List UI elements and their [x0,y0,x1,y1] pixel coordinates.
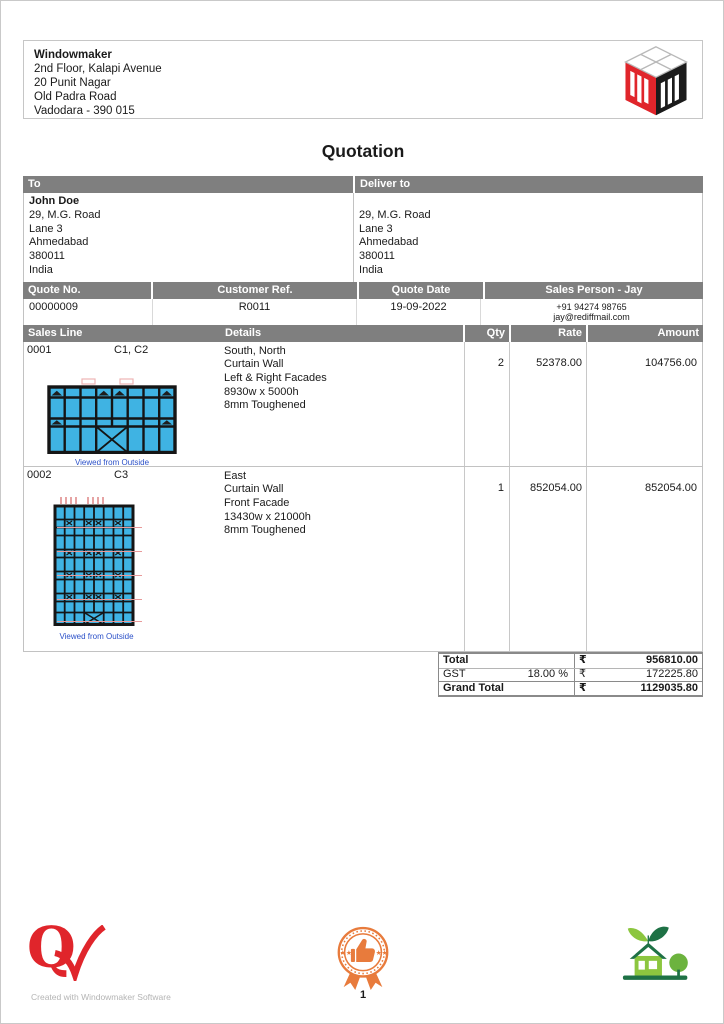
gst-row: GST 18.00 % ₹ 172225.80 [439,668,702,682]
svg-text:★★: ★★ [340,949,352,957]
detail-line: 13430w x 21000h [224,511,311,525]
sales-line-header: Sales Line Details [23,325,463,342]
line-qty: 2 [464,342,509,466]
rupee-symbol: ₹ [575,668,595,681]
items-header-row: Sales Line Details Qty Rate Amount [23,325,703,342]
curtain-wall-drawing-1: Viewed from Outside [47,378,177,467]
total-label: Total [439,654,568,667]
line-amount: 104756.00 [586,342,702,466]
detail-line: 8mm Toughened [224,399,327,413]
customer-name: John Doe [29,195,348,209]
line-amount: 852054.00 [586,467,702,651]
detail-line: Curtain Wall [224,483,311,497]
quotation-tables: To Deliver to John Doe 29, M.G. Road Lan… [23,176,703,697]
line-rate: 852054.00 [509,467,586,651]
curtain-wall-drawing-2: Viewed from Outside [49,495,144,641]
sales-line-row-2: 0002 C3 [23,467,703,652]
deliver-address-line: India [359,264,697,278]
deliver-address-line: Ahmedabad [359,236,697,250]
deliver-address-line: 380011 [359,250,697,264]
line-rate: 52378.00 [509,342,586,466]
grand-total-amount: 1129035.80 [595,682,702,695]
eco-house-icon [619,923,701,990]
line-details: East Curtain Wall Front Facade 13430w x … [224,469,311,651]
customer-ref-header: Customer Ref. [153,282,357,299]
quotation-page: Windowmaker 2nd Floor, Kalapi Avenue 20 … [0,0,724,1024]
line-details: South, North Curtain Wall Left & Right F… [224,344,327,466]
line-number: 0001 [24,344,114,358]
details-label: Details [225,325,261,342]
company-address-line: Vadodara - 390 015 [34,104,692,118]
to-address: John Doe 29, M.G. Road Lane 3 Ahmedabad … [24,193,353,282]
total-row: Total ₹ 956810.00 [439,654,702,668]
address-body: John Doe 29, M.G. Road Lane 3 Ahmedabad … [23,193,703,282]
company-address-line: 2nd Floor, Kalapi Avenue [34,62,692,76]
totals-table: Total ₹ 956810.00 GST 18.00 % ₹ 172225.8… [438,652,703,697]
sales-line-row-1: 0001 C1, C2 [23,342,703,467]
detail-line: 8mm Toughened [224,524,311,538]
qty-header: Qty [465,325,509,342]
to-address-line: Lane 3 [29,223,348,237]
detail-line: South, North [224,345,327,359]
detail-line: Front Facade [224,497,311,511]
grand-total-row: Grand Total ₹ 1129035.80 [439,681,702,695]
meta-values-row: 00000009 R0011 19-09-2022 +91 94274 9876… [23,299,703,325]
svg-text:★★: ★★ [376,949,388,957]
rate-header: Rate [511,325,586,342]
quote-date-header: Quote Date [359,282,483,299]
quality-check-icon: Q [27,923,111,991]
company-name: Windowmaker [34,48,692,62]
quote-date-value: 19-09-2022 [356,299,480,325]
to-address-line: 29, M.G. Road [29,209,348,223]
to-address-line: 380011 [29,250,348,264]
sales-person-phone: +91 94274 98765 [481,302,702,313]
gst-label: GST [439,668,528,681]
line-number: 0002 [24,469,114,483]
gst-pct: 18.00 % [528,668,574,681]
deliver-address-line: 29, M.G. Road [359,209,697,223]
line-qty: 1 [464,467,509,651]
detail-line: 8930w x 5000h [224,386,327,400]
detail-line: Curtain Wall [224,358,327,372]
to-address-line: India [29,264,348,278]
drawing-caption: Viewed from Outside [49,632,144,641]
address-header-row: To Deliver to [23,176,703,193]
sales-person-email: jay@rediffmail.com [481,312,702,323]
sales-person-contact: +91 94274 98765 jay@rediffmail.com [480,299,702,325]
grand-total-label: Grand Total [439,682,568,695]
deliver-address-line: Lane 3 [359,223,697,237]
total-amount: 956810.00 [595,654,702,667]
sales-person-header: Sales Person - Jay [485,282,703,299]
amount-header: Amount [588,325,703,342]
gst-amount: 172225.80 [595,668,702,681]
rupee-symbol: ₹ [575,682,595,695]
quote-no-header: Quote No. [23,282,151,299]
sales-line-label: Sales Line [28,327,82,339]
customer-ref-value: R0011 [152,299,356,325]
line-positions: C1, C2 [114,344,148,358]
windowmaker-cube-logo-icon [617,44,695,123]
company-header-box: Windowmaker 2nd Floor, Kalapi Avenue 20 … [23,40,703,119]
detail-line: East [224,470,311,484]
page-number: 1 [1,989,724,1001]
line-positions: C3 [114,469,128,483]
company-address-line: 20 Punit Nagar [34,76,692,90]
deliver-to-address: 29, M.G. Road Lane 3 Ahmedabad 380011 In… [353,193,702,282]
meta-header-row: Quote No. Customer Ref. Quote Date Sales… [23,282,703,299]
deliver-to-header: Deliver to [355,176,703,193]
to-header: To [23,176,353,193]
rupee-symbol: ₹ [575,654,595,667]
detail-line: Left & Right Facades [224,372,327,386]
quote-no-value: 00000009 [24,299,152,325]
document-title: Quotation [1,141,724,162]
company-address-line: Old Padra Road [34,90,692,104]
to-address-line: Ahmedabad [29,236,348,250]
